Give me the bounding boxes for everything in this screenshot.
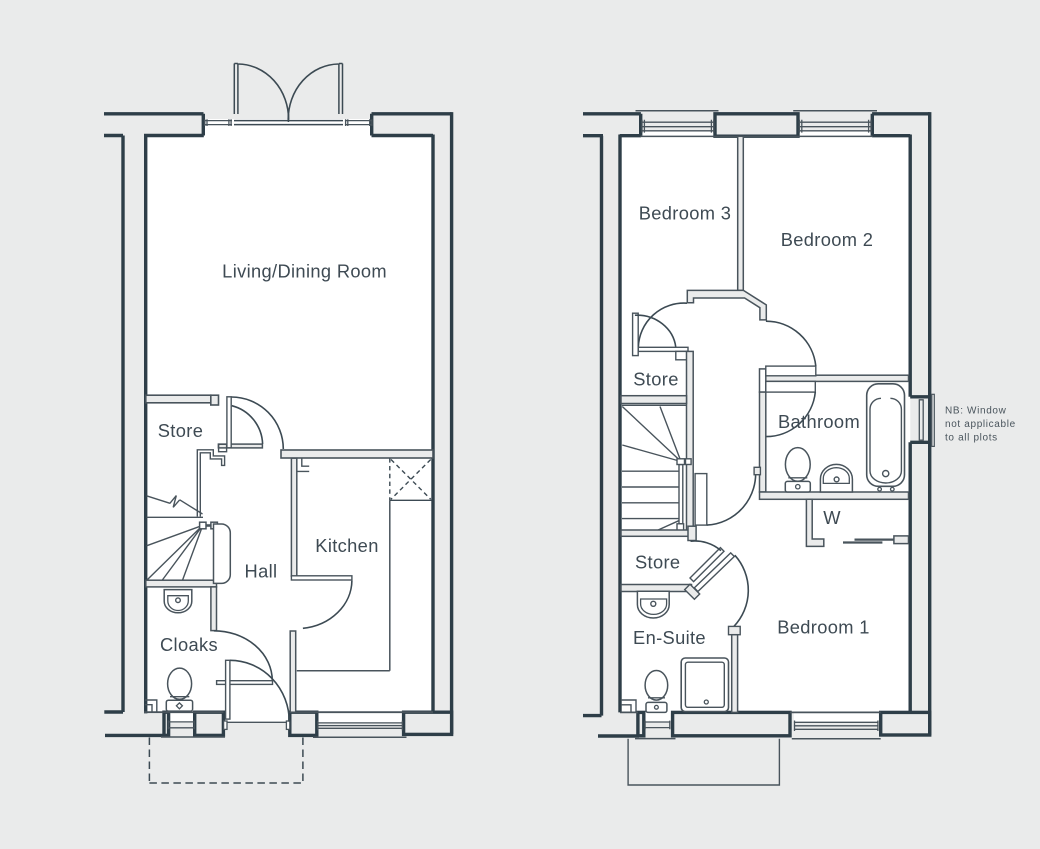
svg-text:Store: Store — [635, 551, 680, 572]
svg-text:En-Suite: En-Suite — [633, 627, 706, 648]
svg-text:Living/Dining Room: Living/Dining Room — [222, 260, 387, 281]
svg-text:Store: Store — [633, 369, 678, 390]
svg-text:to all plots: to all plots — [945, 432, 998, 443]
svg-text:Bedroom 2: Bedroom 2 — [781, 229, 874, 250]
svg-text:Store: Store — [158, 420, 203, 441]
svg-text:W: W — [823, 507, 841, 528]
svg-text:Hall: Hall — [245, 561, 278, 582]
svg-text:Bedroom 1: Bedroom 1 — [777, 616, 870, 637]
svg-text:Bedroom 3: Bedroom 3 — [639, 203, 732, 224]
svg-text:Bathroom: Bathroom — [778, 411, 860, 432]
svg-text:not applicable: not applicable — [945, 419, 1016, 430]
svg-text:Cloaks: Cloaks — [160, 634, 218, 655]
svg-text:Kitchen: Kitchen — [315, 535, 378, 556]
svg-text:NB: Window: NB: Window — [945, 406, 1007, 417]
